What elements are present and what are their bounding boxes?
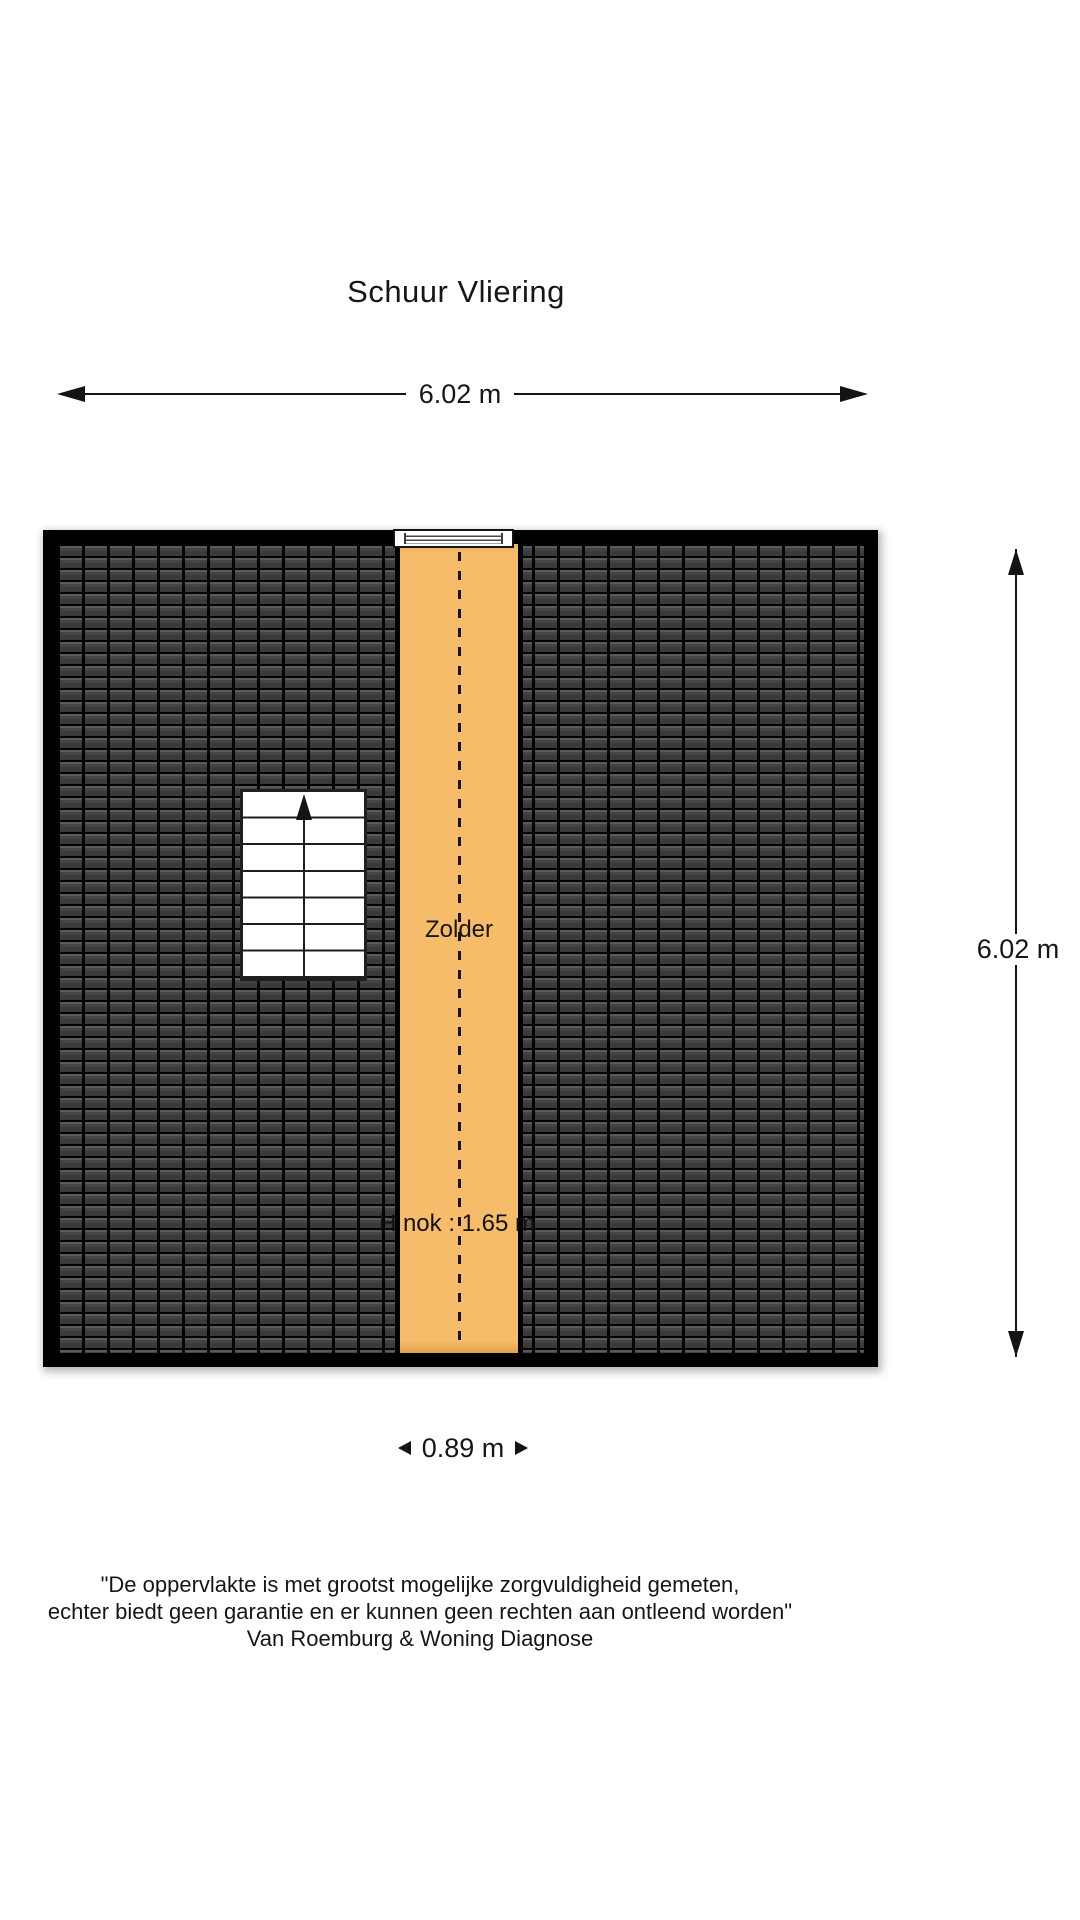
room-label: Zolder xyxy=(395,916,523,944)
disclaimer-line-2: echter biedt geen garantie en er kunnen … xyxy=(19,1598,821,1625)
arrow-right-icon xyxy=(840,386,868,402)
staircase-up-arrow-icon xyxy=(296,794,312,820)
arrow-left-icon xyxy=(57,386,85,402)
disclaimer: "De oppervlakte is met grootst mogelijke… xyxy=(19,1571,821,1652)
arrow-right-small-icon xyxy=(515,1441,528,1455)
arrow-up-icon xyxy=(1008,549,1024,575)
disclaimer-line-3: Van Roemburg & Woning Diagnose xyxy=(19,1625,821,1652)
dimension-label-right: 6.02 m xyxy=(963,934,1073,965)
staircase-centerline xyxy=(303,818,305,978)
dimension-label-bottom: 0.89 m xyxy=(420,1433,507,1464)
page-title: Schuur Vliering xyxy=(156,274,756,310)
arrow-left-small-icon xyxy=(398,1441,411,1455)
floorplan: Zolder H nok : 1.65 m xyxy=(43,530,878,1367)
dimension-label-top: 6.02 m xyxy=(406,379,514,410)
disclaimer-line-1: "De oppervlakte is met grootst mogelijke… xyxy=(19,1571,821,1598)
arrow-down-icon xyxy=(1008,1331,1024,1357)
ridge-height-label: H nok : 1.65 m xyxy=(337,1210,577,1238)
ridge-window xyxy=(393,529,514,548)
ridge-window-louvers xyxy=(404,533,503,544)
dimension-bottom: 0.89 m xyxy=(363,1433,563,1463)
staircase xyxy=(240,789,367,981)
